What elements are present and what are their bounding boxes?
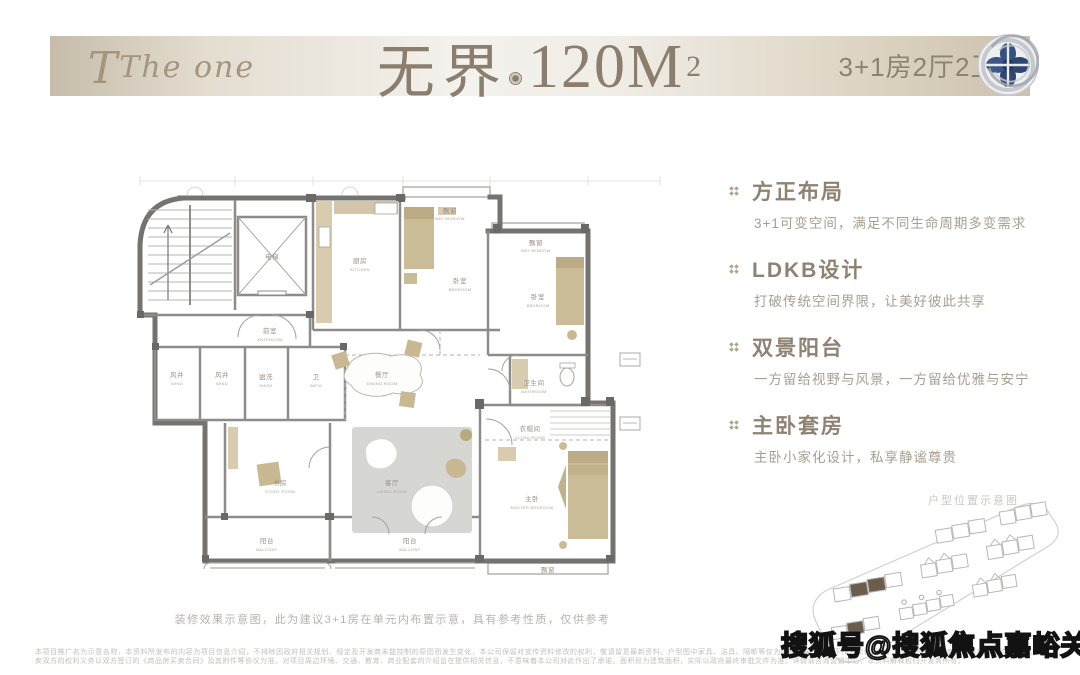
feature-desc: 一方留给视野与风景，一方留给优雅与安宁	[754, 368, 1038, 388]
feature-list: 方正布局 3+1可变空间，满足不同生命周期多变需求 LDKB设计 打破传统空间界…	[728, 176, 1038, 488]
highlighted-building	[850, 582, 869, 597]
feature-title: 双景阳台	[752, 332, 844, 362]
svg-text:风井: 风井	[170, 370, 184, 379]
svg-text:BALCONY: BALCONY	[256, 547, 277, 552]
staircase	[148, 205, 232, 305]
svg-text:WIND: WIND	[216, 381, 228, 386]
highlighted-building	[867, 577, 886, 592]
svg-text:盥洗: 盥洗	[259, 372, 273, 381]
quad-diamond-icon	[728, 185, 740, 197]
svg-text:电梯: 电梯	[265, 252, 279, 261]
brand-initial: T	[88, 43, 119, 94]
svg-text:书房: 书房	[273, 478, 287, 487]
svg-text:阳台: 阳台	[260, 536, 274, 545]
feature-title: LDKB设计	[752, 254, 864, 284]
svg-text:LIVING ROOM: LIVING ROOM	[377, 489, 407, 494]
feature-item-fangzheng: 方正布局 3+1可变空间，满足不同生命周期多变需求	[728, 176, 1038, 232]
svg-text:BAY WINDOW: BAY WINDOW	[521, 248, 550, 253]
svg-text:BAY WINDOW: BAY WINDOW	[435, 216, 464, 221]
quad-diamond-icon	[728, 341, 740, 353]
rose-flower-logo-icon	[977, 34, 1039, 96]
svg-text:飘窗: 飘窗	[443, 206, 457, 215]
feature-desc: 3+1可变空间，满足不同生命周期多变需求	[754, 212, 1038, 232]
quad-diamond-icon	[728, 419, 740, 431]
unit-spec: 3+1房2厅2卫	[838, 50, 998, 84]
bed-bedroom2	[556, 257, 584, 340]
feature-title: 主卧套房	[752, 410, 844, 440]
svg-text:卫生间: 卫生间	[524, 378, 545, 387]
title-cn: 无界	[377, 25, 509, 109]
feature-title: 方正布局	[752, 176, 844, 206]
svg-text:STUDY ROOM: STUDY ROOM	[265, 489, 295, 494]
ac-platforms	[620, 353, 640, 430]
svg-text:ANTEROOM: ANTEROOM	[257, 337, 283, 342]
svg-text:BEDROOM: BEDROOM	[449, 287, 472, 292]
cloak-shelving	[550, 411, 610, 435]
svg-text:阳台: 阳台	[403, 536, 417, 545]
title-area: 120M	[528, 32, 684, 103]
svg-text:卫: 卫	[313, 373, 320, 381]
svg-text:主卧: 主卧	[525, 494, 539, 503]
svg-text:WASH: WASH	[259, 383, 272, 388]
svg-text:BATHROOM: BATHROOM	[521, 389, 546, 394]
feature-desc: 主卧小家化设计，私享静谧尊贵	[754, 446, 1038, 466]
study-desk	[228, 427, 281, 486]
sohu-watermark: 搜狐号@搜狐焦点嘉峪关站	[781, 624, 1080, 663]
page-title: 无界 120M 2	[330, 24, 750, 110]
svg-text:前室: 前室	[263, 326, 277, 335]
feature-item-shuangjing: 双景阳台 一方留给视野与风景，一方留给优雅与安宁	[728, 332, 1038, 388]
floor-plan: 电梯 前室 ANTEROOM 风井 WIND 风井 WIND 盥洗 WASH 卫…	[120, 165, 665, 620]
seal-ornament-icon	[509, 72, 522, 85]
svg-text:WIND: WIND	[171, 381, 183, 386]
svg-text:客厅: 客厅	[385, 478, 399, 487]
svg-text:风井: 风井	[215, 370, 229, 379]
svg-text:衣帽间: 衣帽间	[520, 424, 541, 433]
svg-text:卧室: 卧室	[531, 292, 545, 301]
feature-item-zhuwo: 主卧套房 主卧小家化设计，私享静谧尊贵	[728, 410, 1038, 466]
title-area-sup: 2	[686, 50, 703, 84]
balcony-rails	[204, 563, 475, 569]
brand-logo: TThe one	[88, 42, 308, 94]
bed-master	[498, 442, 608, 549]
svg-text:飘窗: 飘窗	[541, 565, 555, 574]
svg-text:卧室: 卧室	[453, 276, 467, 285]
svg-text:DINING ROOM: DINING ROOM	[367, 381, 398, 386]
svg-text:BATH: BATH	[310, 383, 322, 388]
feature-desc: 打破传统空间界限，让美好彼此共享	[754, 290, 1038, 310]
dimension-line	[140, 176, 660, 195]
svg-text:厨房: 厨房	[353, 256, 367, 265]
svg-text:MASTER BEDROOM: MASTER BEDROOM	[511, 505, 554, 510]
building-row-2	[829, 531, 1038, 602]
svg-text:BALCONY: BALCONY	[399, 547, 420, 552]
brand-text: The one	[119, 50, 255, 85]
quad-diamond-icon	[728, 263, 740, 275]
svg-text:BEDROOM: BEDROOM	[527, 303, 550, 308]
svg-text:KITCHEN: KITCHEN	[350, 267, 370, 272]
plan-caption: 装修效果示意图，此为建议3+1房在单元内布置示意，具有参考性质，仅供参考	[120, 611, 665, 627]
svg-text:飘窗: 飘窗	[529, 238, 543, 247]
living-rug	[352, 427, 472, 533]
svg-text:CLOAK ROOM: CLOAK ROOM	[515, 435, 545, 440]
feature-item-ldkb: LDKB设计 打破传统空间界限，让美好彼此共享	[728, 254, 1038, 310]
svg-text:餐厅: 餐厅	[375, 370, 389, 379]
